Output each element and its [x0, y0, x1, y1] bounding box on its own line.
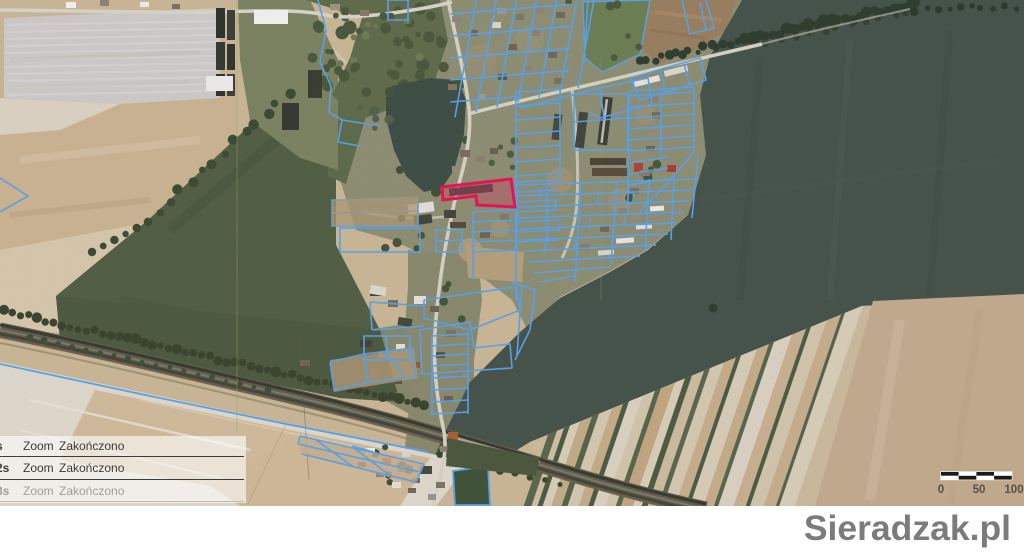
svg-text:100: 100 — [1004, 484, 1023, 496]
svg-text:0: 0 — [938, 484, 944, 496]
svg-text:50: 50 — [973, 484, 986, 496]
